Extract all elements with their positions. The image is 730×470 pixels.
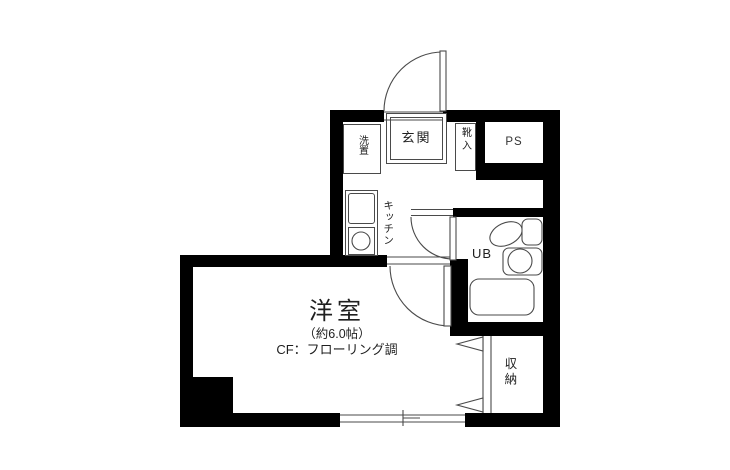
toilet-tank-icon — [522, 219, 542, 245]
shoe-cabinet-label: 靴入 — [459, 127, 471, 153]
closet-arrow-top — [457, 337, 483, 351]
bath-label: UB — [466, 247, 498, 262]
kitchen-burner-icon — [352, 232, 370, 250]
bath-door-arc — [411, 217, 453, 259]
entrance-threshold — [384, 112, 443, 120]
washer-label: 洗置 — [356, 135, 368, 155]
bath-door-leaf — [450, 217, 456, 260]
kitchen-label: キッチン — [382, 200, 394, 246]
room-size-label: （約6.0帖） — [237, 327, 437, 341]
closet-arrow-bottom — [457, 398, 483, 412]
room-door-threshold — [387, 257, 450, 264]
closet-track-lines — [483, 336, 491, 413]
entrance-door-arc — [384, 52, 443, 111]
plan-symbols — [0, 0, 730, 470]
floor-plan: 玄関 洗置 靴入 PS キッチン UB 収納 洋室 （約6.0帖） CF：フロー… — [0, 0, 730, 470]
room-name-label: 洋室 — [237, 298, 437, 326]
basin-bowl-icon — [508, 249, 532, 273]
bath-door-threshold — [411, 210, 453, 216]
bathtub-icon — [470, 279, 534, 315]
window-sash-tick — [403, 410, 420, 426]
entrance-label: 玄関 — [386, 131, 447, 146]
closet-label: 収納 — [502, 357, 516, 388]
room-floor-label: CF：フローリング調 — [237, 343, 437, 358]
pipe-space-label: PS — [485, 136, 543, 149]
room-door-leaf — [444, 266, 451, 326]
entrance-door-leaf — [440, 51, 446, 111]
